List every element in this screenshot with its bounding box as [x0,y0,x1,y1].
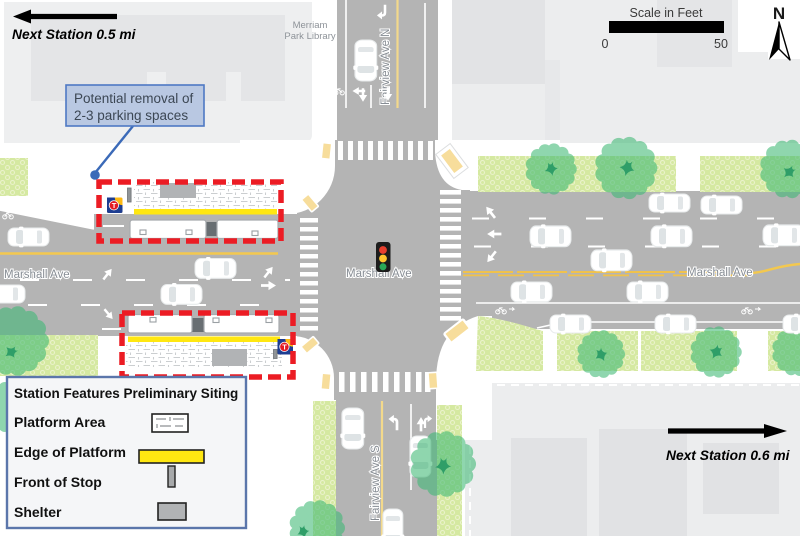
svg-text:0: 0 [602,37,609,51]
svg-text:Potential removal of: Potential removal of [74,91,194,106]
svg-text:Station Features Preliminary S: Station Features Preliminary Siting [14,386,238,401]
svg-text:Next Station 0.6 mi: Next Station 0.6 mi [666,448,791,463]
svg-text:N: N [773,4,785,23]
svg-text:Platform Area: Platform Area [14,414,106,430]
svg-text:Marshall Ave: Marshall Ave [687,267,753,279]
svg-text:Next Station 0.5 mi: Next Station 0.5 mi [12,27,137,42]
svg-text:Scale in Feet: Scale in Feet [630,6,703,20]
svg-text:Front of Stop: Front of Stop [14,474,102,490]
svg-text:Shelter: Shelter [14,504,62,520]
svg-text:Merriam: Merriam [293,20,328,31]
svg-text:50: 50 [714,37,728,51]
svg-text:Fairview Ave N: Fairview Ave N [380,29,392,105]
svg-text:Fairview Ave S: Fairview Ave S [370,445,382,521]
svg-text:Edge of Platform: Edge of Platform [14,444,126,460]
svg-text:Park Library: Park Library [284,31,335,42]
svg-text:Marshall Ave: Marshall Ave [4,269,70,281]
svg-text:2-3 parking spaces: 2-3 parking spaces [74,108,188,123]
